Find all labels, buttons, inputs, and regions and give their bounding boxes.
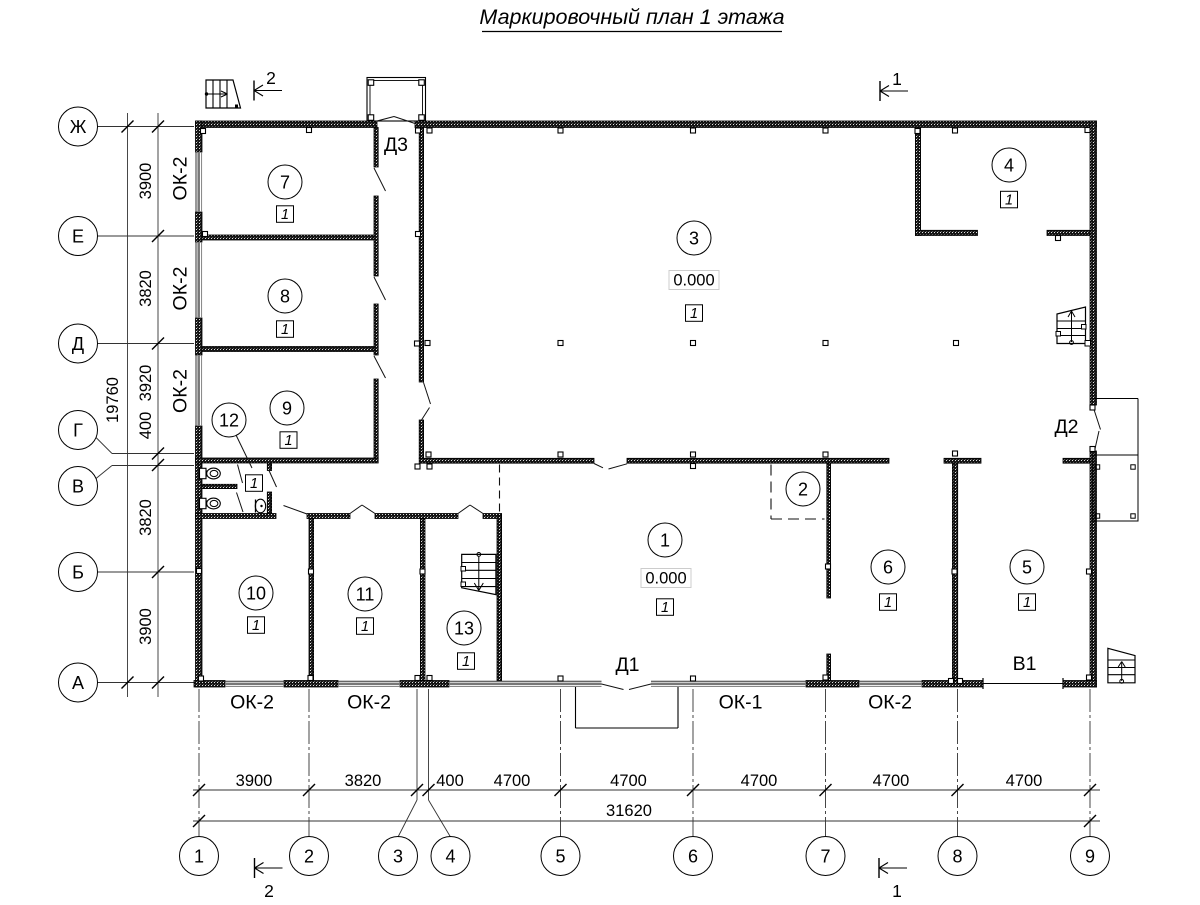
svg-text:2: 2 <box>304 846 314 866</box>
svg-text:0.000: 0.000 <box>645 570 686 588</box>
svg-text:4: 4 <box>1004 155 1014 175</box>
svg-text:Д3: Д3 <box>384 134 408 156</box>
svg-text:1: 1 <box>660 530 670 550</box>
svg-text:ОК-2: ОК-2 <box>170 267 192 311</box>
svg-text:ОК-2: ОК-2 <box>868 692 912 714</box>
svg-text:10: 10 <box>246 583 266 603</box>
svg-text:А: А <box>72 673 84 693</box>
svg-text:1: 1 <box>281 322 289 338</box>
svg-text:6: 6 <box>688 846 698 866</box>
svg-text:2: 2 <box>266 68 276 88</box>
svg-text:1: 1 <box>194 846 204 866</box>
svg-text:12: 12 <box>219 410 239 430</box>
svg-text:0.000: 0.000 <box>673 272 714 290</box>
svg-text:5: 5 <box>1022 557 1032 577</box>
svg-text:4700: 4700 <box>610 772 647 790</box>
svg-text:4700: 4700 <box>1006 772 1043 790</box>
svg-text:3900: 3900 <box>137 608 155 645</box>
svg-text:3: 3 <box>689 228 699 248</box>
svg-text:5: 5 <box>555 846 565 866</box>
svg-text:Д1: Д1 <box>615 654 639 676</box>
svg-text:4: 4 <box>445 846 455 866</box>
svg-text:8: 8 <box>952 846 962 866</box>
svg-text:11: 11 <box>356 584 375 604</box>
svg-text:3920: 3920 <box>137 365 155 402</box>
svg-text:ОК-2: ОК-2 <box>170 157 192 201</box>
svg-text:4700: 4700 <box>873 772 910 790</box>
svg-text:1: 1 <box>1005 193 1013 209</box>
svg-text:9: 9 <box>1085 846 1095 866</box>
svg-text:19760: 19760 <box>104 377 122 423</box>
svg-text:1: 1 <box>892 881 902 900</box>
svg-text:3820: 3820 <box>137 499 155 536</box>
svg-text:Е: Е <box>72 226 84 246</box>
svg-text:3900: 3900 <box>137 163 155 200</box>
svg-text:4700: 4700 <box>741 772 778 790</box>
svg-text:1: 1 <box>361 619 369 635</box>
svg-text:1: 1 <box>1023 595 1031 611</box>
svg-text:1: 1 <box>892 69 902 89</box>
svg-text:4700: 4700 <box>494 772 531 790</box>
svg-text:2: 2 <box>798 479 808 499</box>
svg-text:7: 7 <box>820 846 830 866</box>
svg-text:1: 1 <box>661 600 669 616</box>
svg-text:ОК-2: ОК-2 <box>170 369 192 413</box>
svg-text:1: 1 <box>284 433 292 449</box>
svg-text:Д2: Д2 <box>1054 416 1078 438</box>
svg-text:31620: 31620 <box>606 802 652 820</box>
svg-text:3820: 3820 <box>345 772 382 790</box>
svg-text:3820: 3820 <box>137 270 155 307</box>
svg-text:1: 1 <box>252 618 260 634</box>
svg-text:В: В <box>72 476 84 496</box>
svg-text:ОК-2: ОК-2 <box>230 692 274 714</box>
svg-text:Г: Г <box>73 420 83 440</box>
svg-text:3900: 3900 <box>236 772 273 790</box>
svg-text:7: 7 <box>280 172 290 192</box>
svg-text:9: 9 <box>282 398 292 418</box>
svg-text:1: 1 <box>281 207 289 223</box>
svg-text:1: 1 <box>462 654 470 670</box>
svg-text:Д: Д <box>72 334 84 354</box>
svg-text:1: 1 <box>884 595 892 611</box>
svg-text:Б: Б <box>72 562 84 582</box>
svg-text:400: 400 <box>137 412 155 440</box>
svg-text:1: 1 <box>250 476 258 492</box>
svg-text:13: 13 <box>454 618 474 638</box>
svg-text:6: 6 <box>883 557 893 577</box>
svg-text:400: 400 <box>436 772 464 790</box>
svg-text:Маркировочный план 1 этажа: Маркировочный план 1 этажа <box>479 5 784 29</box>
svg-text:Ж: Ж <box>70 117 87 137</box>
svg-text:2: 2 <box>264 881 274 900</box>
svg-text:8: 8 <box>280 286 290 306</box>
svg-text:В1: В1 <box>1013 653 1037 675</box>
svg-text:1: 1 <box>690 306 698 322</box>
svg-text:ОК-2: ОК-2 <box>347 692 391 714</box>
svg-text:ОК-1: ОК-1 <box>719 692 763 714</box>
svg-text:3: 3 <box>393 846 403 866</box>
